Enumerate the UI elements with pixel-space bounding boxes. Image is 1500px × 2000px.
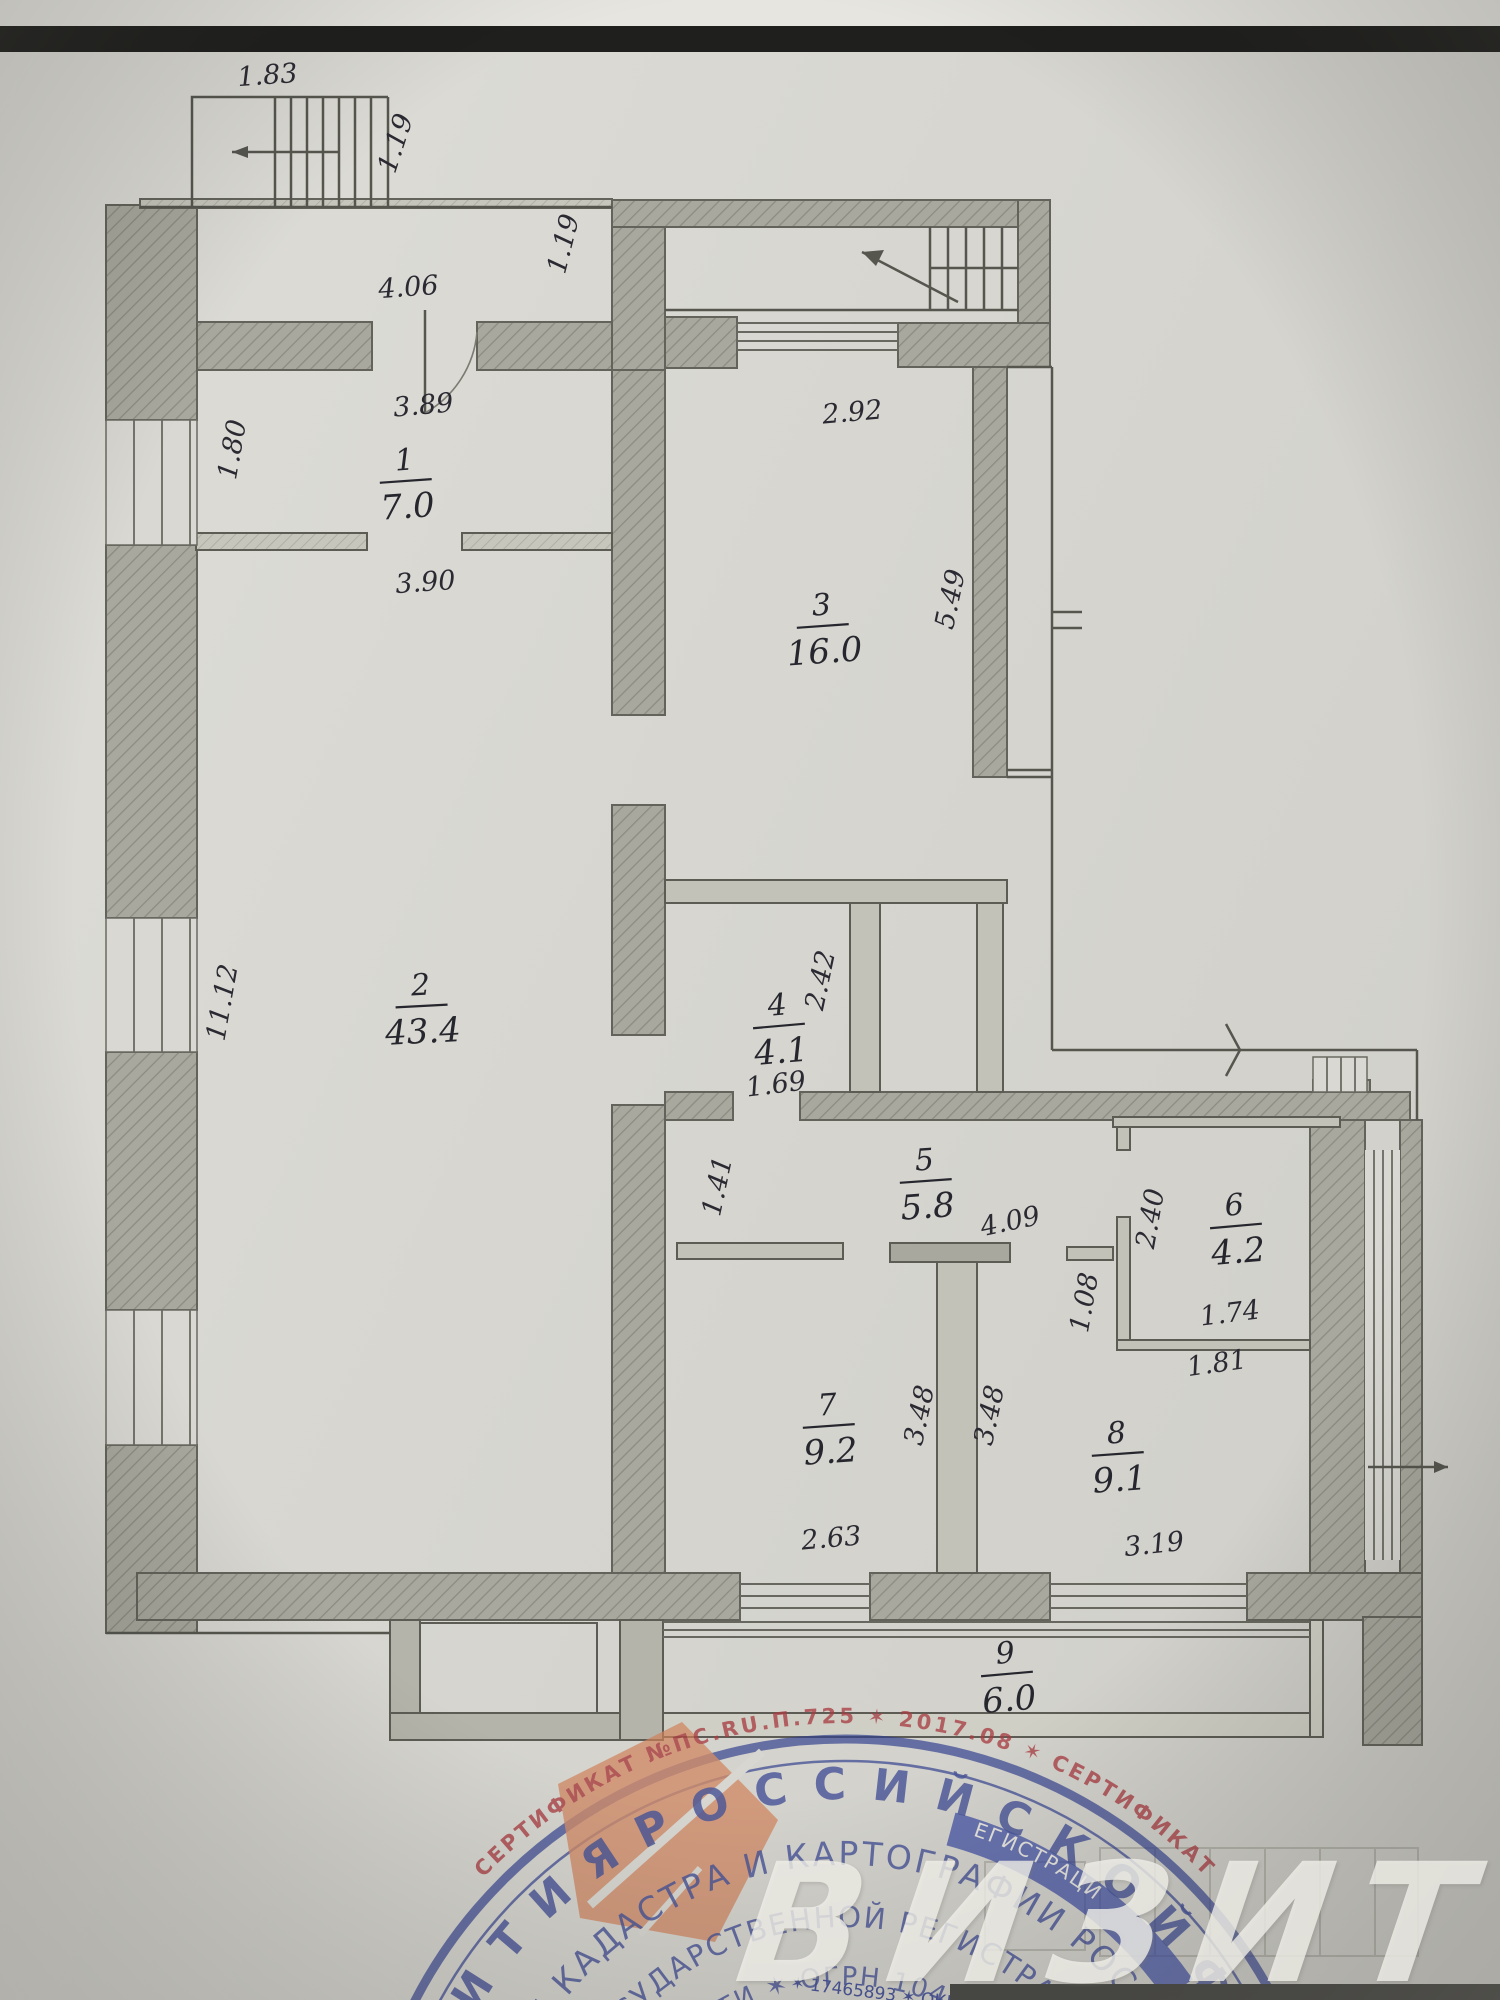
dimension-label: 2.92	[820, 394, 884, 430]
svg-text:2: 2	[409, 968, 431, 1004]
dimension-label: 1.74	[1198, 1295, 1261, 1333]
svg-text:5: 5	[914, 1142, 935, 1178]
interior-partitions	[196, 533, 1340, 1740]
dimension-label: 3.89	[392, 387, 455, 423]
dimension-label: 4.09	[977, 1200, 1043, 1243]
dimension-label: 2.42	[799, 948, 842, 1014]
svg-text:6: 6	[1223, 1187, 1245, 1224]
dimension-label: 2.63	[799, 1520, 863, 1556]
dimension-label: 1.80	[212, 417, 253, 482]
svg-text:8: 8	[1106, 1415, 1127, 1451]
svg-text:3: 3	[811, 587, 832, 623]
svg-text:43.4: 43.4	[383, 1010, 462, 1054]
room-label: 55.8	[896, 1141, 956, 1229]
dimension-label: 4.06	[376, 270, 439, 305]
room-label: 243.4	[381, 966, 462, 1054]
svg-text:4: 4	[765, 987, 788, 1024]
svg-text:9.2: 9.2	[802, 1430, 859, 1474]
dimension-label: 1.08	[1064, 1270, 1105, 1335]
scanned-floor-plan-page: 17.0243.4316.044.155.864.279.289.196.01.…	[0, 0, 1500, 2000]
dimension-label: 1.83	[236, 58, 298, 93]
windows	[106, 323, 1448, 1637]
svg-text:16.0: 16.0	[785, 629, 863, 674]
svg-text:5.8: 5.8	[899, 1185, 956, 1229]
svg-text:7.0: 7.0	[379, 485, 436, 529]
svg-text:9: 9	[994, 1635, 1016, 1672]
dimension-label: 11.12	[201, 962, 245, 1044]
room-label: 64.2	[1205, 1186, 1267, 1274]
dimension-label: 1.19	[541, 211, 586, 277]
floor-plan: 17.0243.4316.044.155.864.279.289.196.01.…	[0, 0, 1500, 2000]
photo-top-border	[0, 0, 1500, 52]
room-label: 79.2	[799, 1386, 859, 1474]
svg-text:6.0: 6.0	[981, 1678, 1038, 1723]
room-label: 316.0	[782, 585, 863, 674]
svg-text:9.1: 9.1	[1091, 1458, 1148, 1502]
dimension-label: 1.41	[696, 1154, 739, 1219]
stairs-entrance	[665, 227, 1018, 310]
agency-watermark: ВИЗИТ	[730, 1828, 1500, 1998]
dimension-label: 2.40	[1130, 1186, 1171, 1252]
room-label: 96.0	[977, 1634, 1038, 1722]
svg-text:1: 1	[394, 442, 415, 478]
room-label: 89.1	[1088, 1414, 1148, 1502]
outline-lines	[106, 310, 1417, 1633]
dimension-label: 5.49	[929, 567, 972, 632]
exterior-walls	[106, 199, 1422, 1745]
room-label: 17.0	[376, 441, 436, 529]
svg-text:7: 7	[817, 1387, 839, 1423]
dimension-label: 1.69	[744, 1066, 807, 1104]
svg-text:4.2: 4.2	[1209, 1230, 1267, 1275]
dimension-label: 1.19	[372, 110, 420, 177]
dimension-label: 3.19	[1123, 1526, 1186, 1563]
dimension-label: 3.90	[394, 565, 456, 600]
dimension-label: 3.48	[898, 1383, 941, 1448]
